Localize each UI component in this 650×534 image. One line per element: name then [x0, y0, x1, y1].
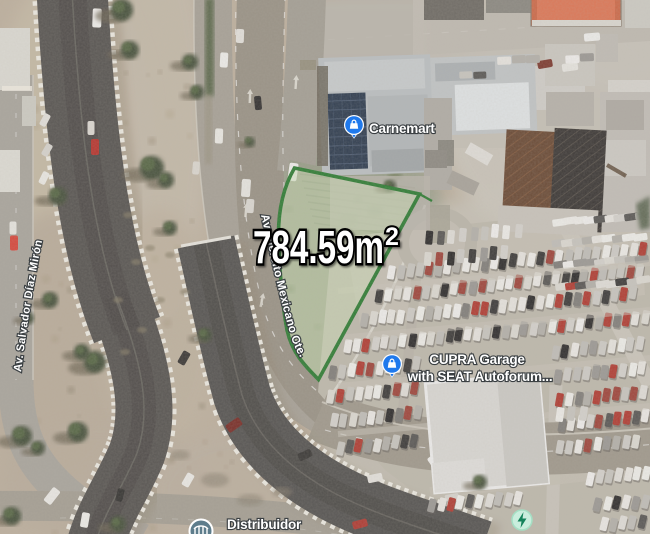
- svg-text:2: 2: [385, 223, 399, 251]
- svg-text:CUPRA Garage: CUPRA Garage: [429, 352, 525, 367]
- svg-text:Carnemart: Carnemart: [369, 121, 435, 136]
- svg-text:Distribuidor: Distribuidor: [227, 517, 302, 532]
- svg-text:with SEAT Autoforum...: with SEAT Autoforum...: [407, 369, 553, 384]
- svg-text:784.59m: 784.59m: [253, 221, 384, 273]
